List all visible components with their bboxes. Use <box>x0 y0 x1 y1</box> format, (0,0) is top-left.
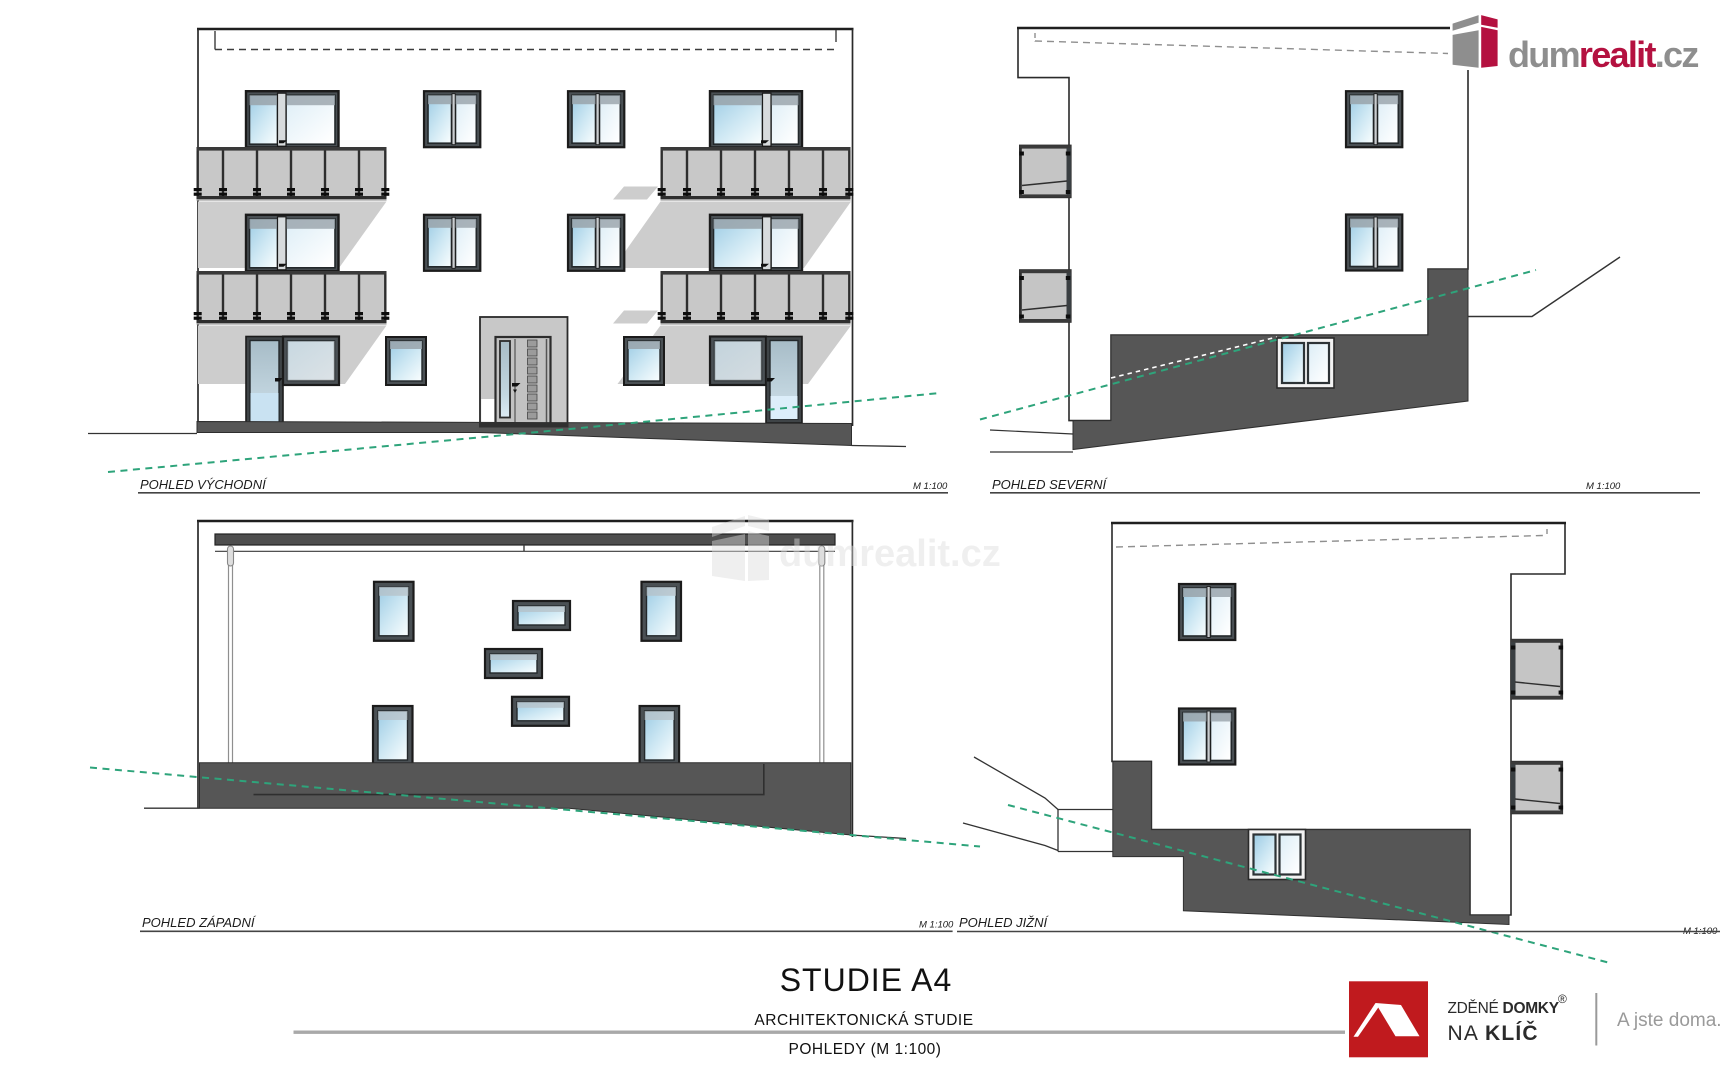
svg-text:M 1:100: M 1:100 <box>919 920 954 931</box>
svg-text:M 1:100: M 1:100 <box>913 481 948 492</box>
svg-text:POHLEDY (M 1:100): POHLEDY (M 1:100) <box>789 1041 942 1058</box>
svg-text:POHLED JIŽNÍ: POHLED JIŽNÍ <box>959 915 1050 930</box>
svg-text:NA KLÍČ: NA KLÍČ <box>1448 1021 1539 1045</box>
svg-text:POHLED ZÁPADNÍ: POHLED ZÁPADNÍ <box>142 915 257 930</box>
svg-text:®: ® <box>1558 992 1567 1006</box>
svg-text:M 1:100: M 1:100 <box>1586 481 1621 492</box>
svg-text:STUDIE A4: STUDIE A4 <box>780 962 953 998</box>
svg-text:dumrealit.cz: dumrealit.cz <box>1508 34 1698 75</box>
svg-text:ZDĚNÉ DOMKY: ZDĚNÉ DOMKY <box>1448 1000 1560 1017</box>
svg-text:A jste doma.: A jste doma. <box>1617 1010 1722 1031</box>
svg-text:dumrealit.cz: dumrealit.cz <box>779 533 1001 575</box>
svg-text:POHLED SEVERNÍ: POHLED SEVERNÍ <box>992 477 1109 492</box>
svg-text:POHLED VÝCHODNÍ: POHLED VÝCHODNÍ <box>140 477 268 492</box>
svg-text:ARCHITEKTONICKÁ STUDIE: ARCHITEKTONICKÁ STUDIE <box>754 1012 973 1029</box>
